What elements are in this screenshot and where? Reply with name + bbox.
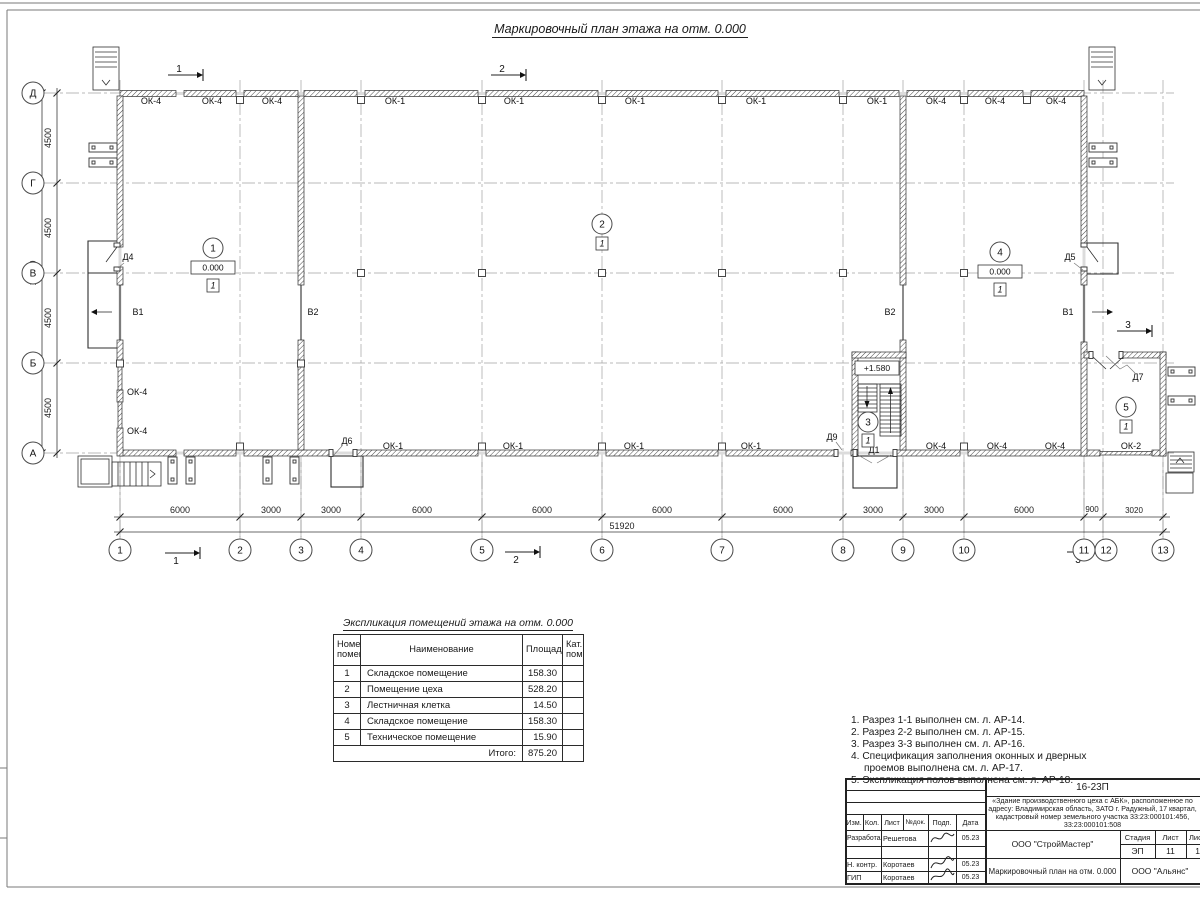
axis-letter: Б (30, 359, 37, 370)
stage-value: ЭП (1120, 844, 1155, 858)
floor-type: 1 (1123, 422, 1128, 432)
signature (929, 830, 955, 846)
role-developer: Разработал (847, 832, 881, 844)
window-label: ОК-1 (625, 96, 645, 106)
opening-labels: В1 В2 В2 В1 Д4 Д5 Д6 Д7 Д9 Д1 (122, 252, 1143, 455)
sheet-label: Лист (1155, 831, 1186, 844)
floor-type: 1 (997, 285, 1002, 295)
pilasters (89, 143, 1195, 484)
dim-total-label: 51920 (609, 521, 634, 531)
axis-number: 3 (298, 546, 304, 557)
cell-cat (563, 682, 584, 698)
dim-label: 6000 (532, 505, 552, 515)
gate-label: В2 (307, 307, 318, 317)
window-label: ОК-1 (503, 441, 523, 451)
col-header-num: Номер помещ. (334, 635, 361, 666)
sheets-label: Листов (1189, 831, 1200, 844)
window-label: ОК-4 (1046, 96, 1066, 106)
note-item: 3. Разрез 3-3 выполнен см. л. АР-16. (851, 739, 1186, 751)
table-row: 4 Складское помещение 158.30 (334, 714, 584, 730)
org-client: ООО "Альянс" (1120, 859, 1200, 883)
axis-letter: А (30, 449, 37, 460)
cell-cat (563, 666, 584, 682)
table-row: 1 Складское помещение 158.30 (334, 666, 584, 682)
cell-name: Лестничная клетка (361, 698, 523, 714)
door-label: Д6 (341, 436, 352, 446)
col-ndok: №док. (903, 815, 928, 829)
window-label: ОК-1 (624, 441, 644, 451)
table-header-row: Номер помещ. Наименование Площадь Кат. п… (334, 635, 584, 666)
col-data: Дата (956, 815, 985, 829)
dim-label: 6000 (652, 505, 672, 515)
col-izm: Изм. (845, 815, 863, 829)
cell-name: Складское помещение (361, 714, 523, 730)
drawing-sheet: .dd{stroke:#a3a3a3;stroke-width:.7;strok… (0, 0, 1200, 900)
sheets-value: 1 (1186, 844, 1200, 858)
section-mark: 1 (176, 64, 182, 75)
window-label: ОК-1 (385, 96, 405, 106)
dim-label: 6000 (412, 505, 432, 515)
floor-type: 1 (210, 281, 215, 291)
table-total-row: Итого: 875.20 (334, 746, 584, 762)
vestibules-porches (88, 241, 1118, 488)
room-number: 4 (997, 248, 1003, 259)
axis-number: 13 (1157, 546, 1169, 557)
axis-number: 12 (1100, 546, 1112, 557)
grid-axes: 1 2 3 4 5 6 7 8 9 10 11 12 13 Д Г В Б А (22, 82, 1174, 561)
window-label: ОК-4 (141, 96, 161, 106)
axis-number: 8 (840, 546, 846, 557)
page-title: Маркировочный план этажа на отм. 0.000 (390, 20, 850, 38)
dim-label: 900 (1085, 505, 1099, 514)
note-item: 2. Разрез 2-2 выполнен см. л. АР-15. (851, 727, 1186, 739)
extension-lines (120, 462, 1163, 537)
dim-label: 3020 (1125, 506, 1143, 515)
window-label: ОК-4 (987, 441, 1007, 451)
col-podp: Подп. (928, 815, 956, 829)
name-gip: Коротаев (883, 872, 927, 883)
window-label: ОК-4 (1045, 441, 1065, 451)
cell-cat (563, 730, 584, 746)
window-label: ОК-1 (741, 441, 761, 451)
note-item-continuation: проемов выполнена см. л. АР-17. (851, 763, 1186, 775)
window-label: ОК-4 (202, 96, 222, 106)
window-label: ОК-4 (985, 96, 1005, 106)
date-gip: 05.23 (956, 872, 985, 883)
room-number: 2 (599, 220, 605, 231)
col-header-name: Наименование (361, 635, 523, 666)
section-mark: 2 (513, 555, 519, 566)
dim-label: 4500 (43, 308, 53, 328)
cell-area: 528.20 (523, 682, 563, 698)
total-value: 875.20 (523, 746, 563, 762)
cell-num: 1 (334, 666, 361, 682)
room-markers: 1 0.000 1 2 1 3 1 4 0.000 1 5 1 +1.580 (191, 214, 1136, 447)
section-mark: 1 (173, 556, 179, 567)
axis-number: 7 (719, 546, 725, 557)
window-label: ОК-4 (926, 441, 946, 451)
door-label: Д9 (826, 432, 837, 442)
note-item: 4. Спецификация заполнения оконных и две… (851, 751, 1186, 763)
drawing-title: Маркировочный план на отм. 0.000 (985, 859, 1120, 883)
axis-letter: Г (30, 179, 36, 190)
dim-label: 3000 (863, 505, 883, 515)
cell-area: 158.30 (523, 666, 563, 682)
window-label: ОК-4 (127, 387, 147, 397)
axis-number: 6 (599, 546, 605, 557)
window-label: ОК-1 (504, 96, 524, 106)
stage-label: Стадия (1120, 831, 1155, 844)
room-number: 3 (865, 418, 871, 429)
axis-number: 5 (479, 546, 485, 557)
door-label: Д4 (122, 252, 133, 262)
page-title-text: Маркировочный план этажа на отм. 0.000 (492, 22, 748, 38)
cell-name: Складское помещение (361, 666, 523, 682)
cell-num: 2 (334, 682, 361, 698)
dim-label: 4500 (43, 128, 53, 148)
col-kol: Кол. (863, 815, 881, 829)
signature (929, 868, 955, 884)
gate-label: В1 (132, 307, 143, 317)
title-block: 16-23П «Здание производственного цеха с … (845, 778, 1200, 885)
room-number: 5 (1123, 403, 1129, 414)
cell-area: 14.50 (523, 698, 563, 714)
col-list: Лист (881, 815, 903, 829)
col-header-area: Площадь (523, 635, 563, 666)
door-label: Д5 (1064, 252, 1075, 262)
cell-name: Помещение цеха (361, 682, 523, 698)
room-elevation: 0.000 (989, 267, 1011, 277)
col-header-cat: Кат. пом. (563, 635, 584, 666)
landing-elevation: +1.580 (864, 363, 891, 373)
grid-lines (44, 80, 1174, 539)
table-row: 2 Помещение цеха 528.20 (334, 682, 584, 698)
table-row: 5 Техническое помещение 15.90 (334, 730, 584, 746)
axis-number: 4 (358, 546, 364, 557)
name-developer: Решетова (883, 832, 927, 844)
project-description: «Здание производственного цеха с АБК», р… (987, 797, 1198, 829)
window-label: ОК-4 (262, 96, 282, 106)
sheet-value: 11 (1155, 844, 1186, 858)
axis-number: 1 (117, 546, 123, 557)
gate-label: В2 (884, 307, 895, 317)
cell-num: 4 (334, 714, 361, 730)
dimension-lines-bottom: 6000 3000 3000 6000 6000 6000 6000 3000 … (114, 505, 1170, 536)
cell-num: 5 (334, 730, 361, 746)
date-developer: 05.23 (956, 832, 985, 844)
floor-type: 1 (865, 436, 870, 446)
room-elevation: 0.000 (202, 263, 224, 273)
doc-number: 16-23П (985, 780, 1200, 794)
name-ncontrol: Коротаев (883, 859, 927, 870)
table-row: 3 Лестничная клетка 14.50 (334, 698, 584, 714)
section-mark: 2 (499, 64, 505, 75)
total-label: Итого: (334, 746, 523, 762)
axis-letter: Д (30, 89, 37, 100)
dim-label: 6000 (1014, 505, 1034, 515)
window-label: ОК-4 (926, 96, 946, 106)
cell-cat (563, 698, 584, 714)
cell-cat (563, 746, 584, 762)
gate-label: В1 (1062, 307, 1073, 317)
axis-number: 11 (1079, 546, 1090, 557)
window-labels-bottom: ОК-1 ОК-1 ОК-1 ОК-1 ОК-4 ОК-4 ОК-4 ОК-2 … (127, 387, 1141, 451)
exploitation-table: Экспликация помещений этажа на отм. 0.00… (333, 617, 583, 762)
dim-label: 3000 (261, 505, 281, 515)
window-label: ОК-1 (867, 96, 887, 106)
notes-list: 1. Разрез 1-1 выполнен см. л. АР-14. 2. … (851, 715, 1186, 787)
section-mark: 3 (1125, 320, 1131, 331)
window-label: ОК-1 (383, 441, 403, 451)
cell-area: 158.30 (523, 714, 563, 730)
dim-label: 3000 (321, 505, 341, 515)
dim-label: 3000 (924, 505, 944, 515)
axis-number: 9 (900, 546, 906, 557)
window-label: ОК-1 (746, 96, 766, 106)
cell-area: 15.90 (523, 730, 563, 746)
window-label: ОК-4 (127, 426, 147, 436)
axis-letter: В (30, 269, 37, 280)
door-label: Д7 (1132, 372, 1143, 382)
cell-cat (563, 714, 584, 730)
window-label: ОК-2 (1121, 441, 1141, 451)
cell-name: Техническое помещение (361, 730, 523, 746)
room-number: 1 (210, 244, 216, 255)
org-contractor: ООО "СтройМастер" (985, 830, 1120, 858)
axis-number: 10 (958, 546, 970, 557)
dim-label: 6000 (773, 505, 793, 515)
axis-number: 2 (237, 546, 243, 557)
floor-type: 1 (599, 239, 604, 249)
table-title: Экспликация помещений этажа на отм. 0.00… (333, 617, 583, 629)
exterior-stairs (78, 47, 1194, 493)
cell-num: 3 (334, 698, 361, 714)
role-ncontrol: Н. контр. (847, 859, 881, 870)
dim-label: 4500 (43, 398, 53, 418)
note-item: 1. Разрез 1-1 выполнен см. л. АР-14. (851, 715, 1186, 727)
dim-label: 6000 (170, 505, 190, 515)
role-gip: ГИП (847, 872, 881, 883)
dim-label: 4500 (43, 218, 53, 238)
date-ncontrol: 05.23 (956, 859, 985, 870)
